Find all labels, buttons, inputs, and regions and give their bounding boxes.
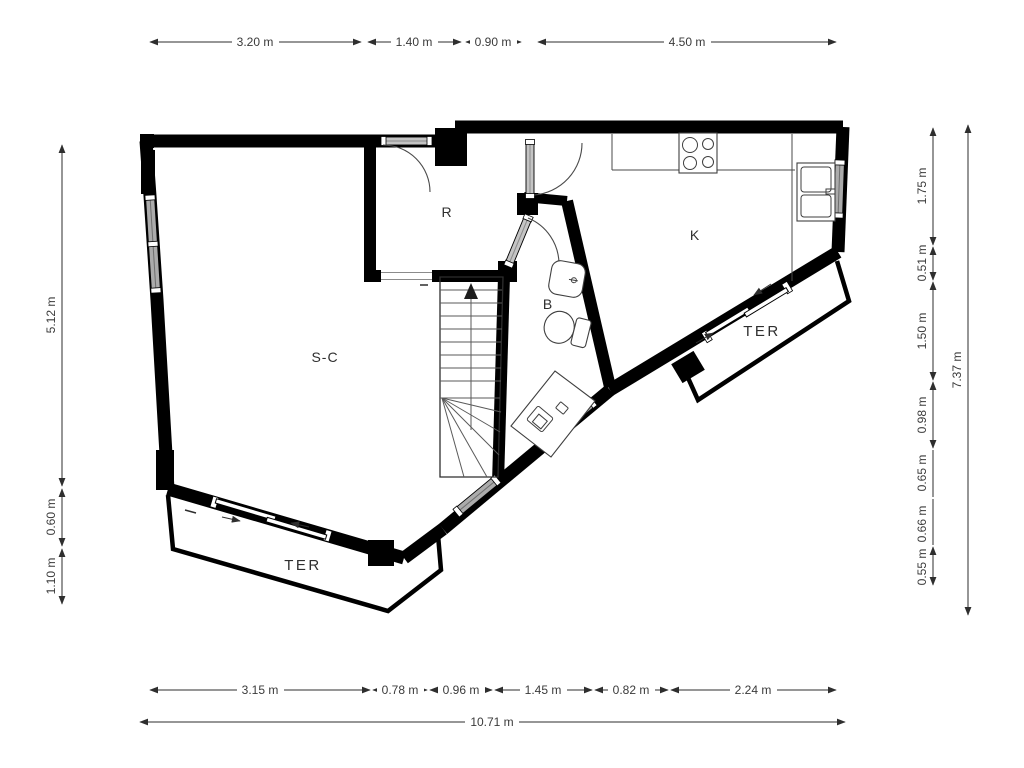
kitchen-sink-icon <box>797 163 835 221</box>
floor-plan-canvas: S-C R K B TER TER 3.20 m 1.40 m 0.90 m 4… <box>0 0 1024 768</box>
dimensions-bottom: 3.15 m 0.78 m 0.96 m 1.45 m 0.82 m 2.24 … <box>140 683 845 729</box>
toilet-icon <box>541 308 592 350</box>
door-bedroom-frame <box>381 137 432 146</box>
stove-icon <box>679 133 717 173</box>
svg-text:0.90 m: 0.90 m <box>475 35 512 49</box>
svg-text:7.37 m: 7.37 m <box>950 352 964 389</box>
doorway-bedroom-bottom <box>381 273 432 280</box>
wall-left-step-bottom <box>156 450 174 490</box>
window-tip-diagonal <box>453 475 501 517</box>
svg-text:2.24 m: 2.24 m <box>735 683 772 697</box>
dim-bottom-0: 3.15 m <box>150 683 370 697</box>
wall-corner-topleft <box>140 134 154 148</box>
wall-left-step-top <box>141 150 155 194</box>
wall-pillar-entry <box>435 128 467 166</box>
svg-text:1.40 m: 1.40 m <box>396 35 433 49</box>
door-bathroom-frame <box>504 214 533 268</box>
slide-arrow-right <box>222 517 240 521</box>
dim-bottom-1: 0.78 m <box>373 683 427 697</box>
dim-right-total: 7.37 m <box>950 125 968 615</box>
svg-text:1.10 m: 1.10 m <box>44 558 58 595</box>
svg-text:3.20 m: 3.20 m <box>237 35 274 49</box>
dim-right-6: 0.55 m <box>915 547 933 585</box>
svg-text:0.82 m: 0.82 m <box>613 683 650 697</box>
dim-bottom-4: 0.82 m <box>595 683 668 697</box>
dim-top-0: 3.20 m <box>150 35 361 49</box>
door-entry-frame <box>526 140 535 199</box>
svg-text:0.60 m: 0.60 m <box>44 499 58 536</box>
dim-top-1: 1.40 m <box>368 35 461 49</box>
svg-text:1.45 m: 1.45 m <box>525 683 562 697</box>
svg-text:0.98 m: 0.98 m <box>915 397 929 434</box>
room-label-terrace-left: TER <box>284 557 322 574</box>
tick-mark-2 <box>185 510 196 513</box>
svg-text:3.15 m: 3.15 m <box>242 683 279 697</box>
desk <box>511 371 595 457</box>
svg-text:0.65 m: 0.65 m <box>915 455 929 492</box>
svg-text:0.96 m: 0.96 m <box>443 683 480 697</box>
room-label-bathroom: B <box>543 296 553 312</box>
dim-bottom-2: 0.96 m <box>430 683 492 697</box>
dim-right-1: 0.51 m <box>915 245 933 282</box>
svg-text:1.75 m: 1.75 m <box>915 168 929 205</box>
dim-bottom-total: 10.71 m <box>140 715 845 729</box>
room-label-living: S-C <box>311 349 338 365</box>
kitchen-fixtures <box>612 133 835 281</box>
door-bedroom-swing <box>383 145 430 192</box>
dim-top-3: 4.50 m <box>538 35 836 49</box>
dim-right-0: 1.75 m <box>915 128 933 245</box>
dim-bottom-3: 1.45 m <box>495 683 592 697</box>
svg-text:1.50 m: 1.50 m <box>915 313 929 350</box>
svg-text:5.12 m: 5.12 m <box>44 297 58 334</box>
dim-right-2: 1.50 m <box>915 282 933 380</box>
svg-text:4.50 m: 4.50 m <box>669 35 706 49</box>
dim-left-1: 0.60 m <box>44 489 62 546</box>
dimensions-right: 1.75 m 0.51 m 1.50 m 0.98 m 0.65 m 0.66 … <box>915 125 968 615</box>
svg-text:10.71 m: 10.71 m <box>470 715 513 729</box>
interior-walls <box>364 141 610 483</box>
dim-top-2: 0.90 m <box>466 35 521 49</box>
bathroom-fixtures <box>511 259 595 457</box>
svg-text:0.78 m: 0.78 m <box>382 683 419 697</box>
dim-left-2: 1.10 m <box>44 549 62 604</box>
outer-walls <box>140 127 843 566</box>
dim-right-5: 0.66 m <box>915 499 933 545</box>
svg-text:0.55 m: 0.55 m <box>915 549 929 586</box>
room-label-kitchen: K <box>690 227 700 243</box>
room-label-bedroom: R <box>441 204 452 220</box>
dim-bottom-5: 2.24 m <box>671 683 836 697</box>
svg-text:0.66 m: 0.66 m <box>915 506 929 543</box>
dim-left-0: 5.12 m <box>44 145 62 486</box>
sliding-door-terrace-left <box>210 496 332 542</box>
dim-right-4: 0.65 m <box>915 450 933 497</box>
dim-right-3: 0.98 m <box>915 382 933 448</box>
wall-tip-chunk <box>368 540 394 566</box>
dimensions-top: 3.20 m 1.40 m 0.90 m 4.50 m <box>150 35 836 49</box>
door-bathroom-swing <box>528 218 559 264</box>
bath-sink-icon <box>547 259 586 298</box>
svg-text:0.51 m: 0.51 m <box>915 245 929 282</box>
room-labels: S-C R K B TER TER <box>284 204 781 574</box>
dimensions-left: 5.12 m 0.60 m 1.10 m <box>44 145 62 604</box>
door-entry-swing <box>534 143 582 195</box>
stair-direction-arrow <box>464 283 478 299</box>
room-label-terrace-right: TER <box>743 323 781 340</box>
